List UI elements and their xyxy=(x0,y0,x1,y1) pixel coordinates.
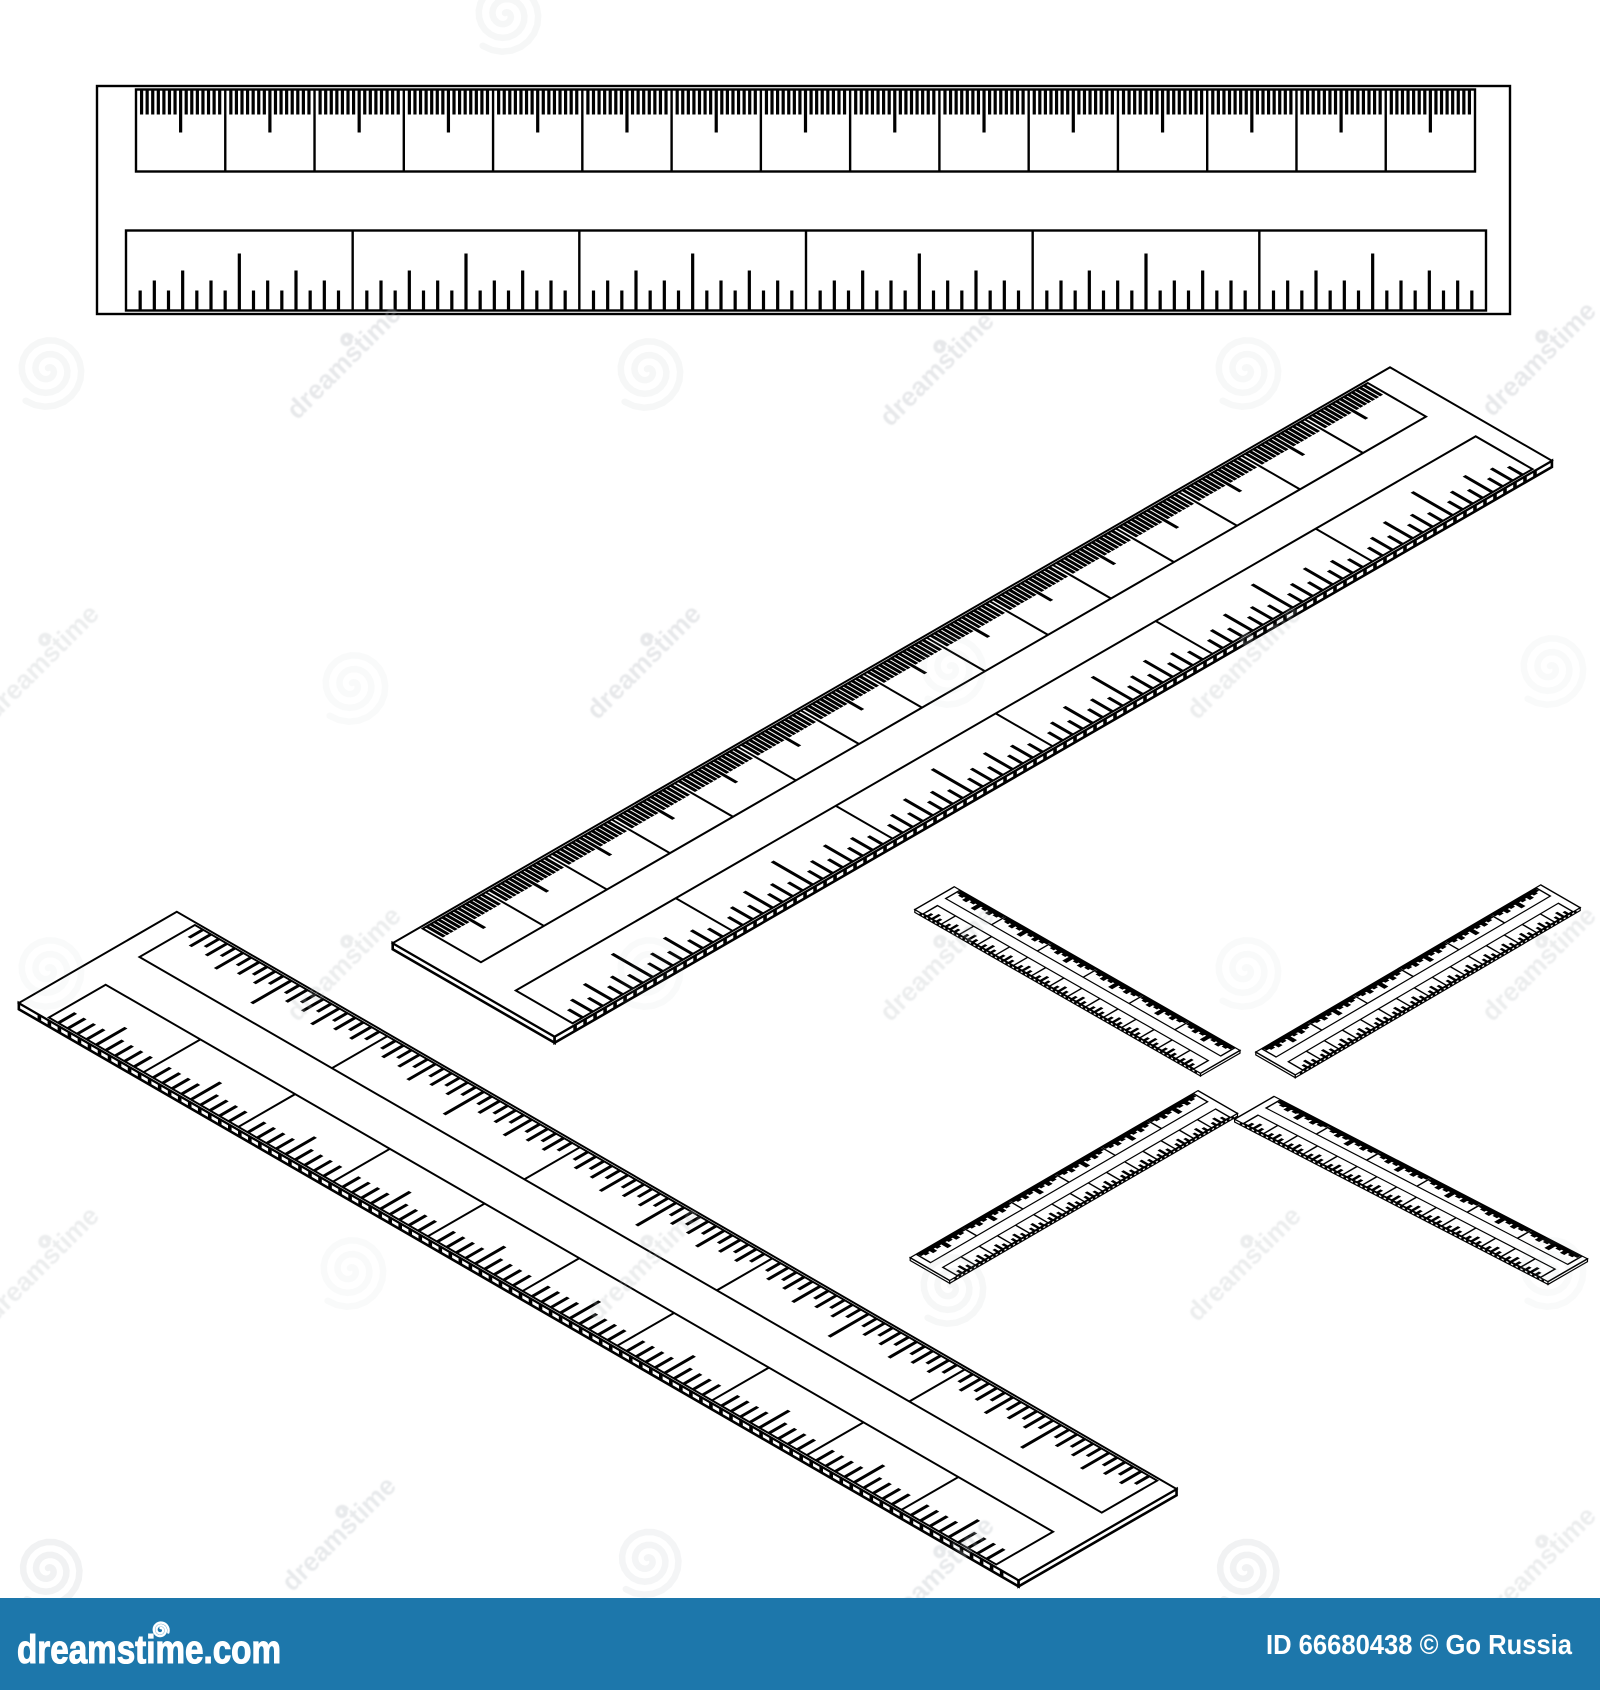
svg-text:ID 66680438 © Go Russia: ID 66680438 © Go Russia xyxy=(1266,1629,1573,1660)
svg-text:dreamstime.com: dreamstime.com xyxy=(17,1628,281,1672)
